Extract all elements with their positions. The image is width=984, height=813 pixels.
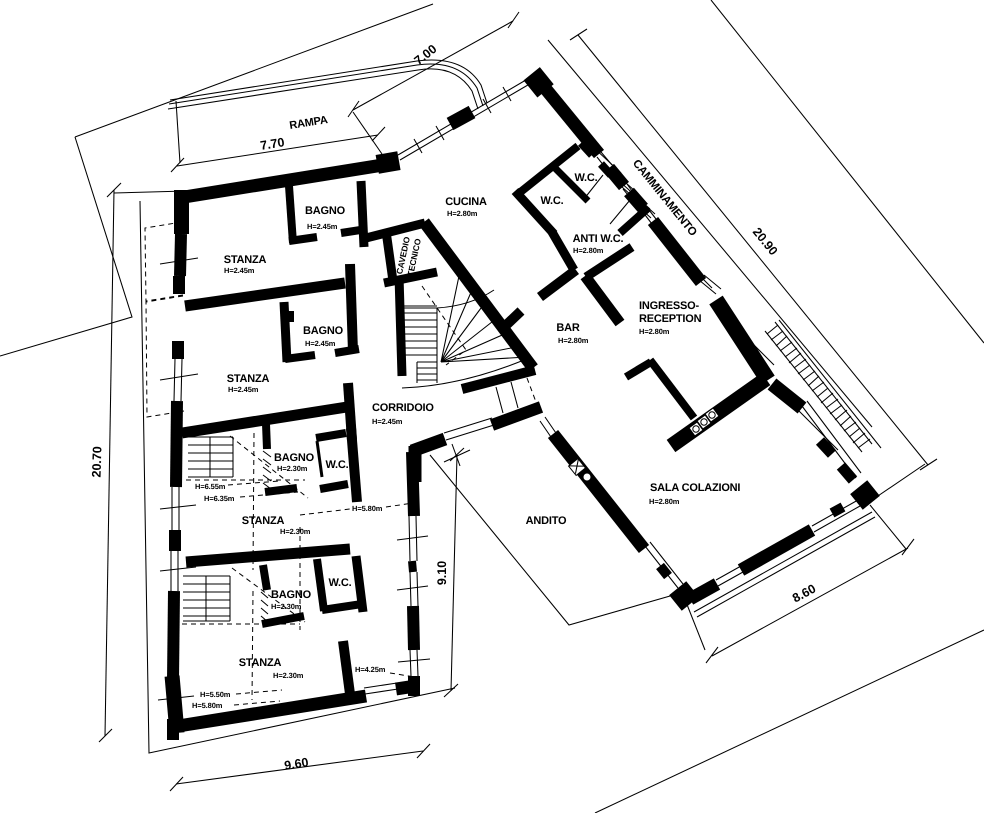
svg-text:W.C.: W.C. — [540, 195, 563, 207]
svg-text:STANZA: STANZA — [242, 515, 285, 527]
svg-text:H=2.45m: H=2.45m — [224, 266, 255, 275]
svg-text:ANDITO: ANDITO — [526, 515, 567, 527]
svg-text:H=5.50m: H=5.50m — [200, 690, 231, 699]
svg-text:CUCINA: CUCINA — [445, 196, 487, 208]
svg-text:BAR: BAR — [556, 322, 579, 334]
svg-text:H=2.80m: H=2.80m — [447, 209, 478, 218]
svg-text:20.70: 20.70 — [89, 446, 104, 478]
svg-text:H=2.30m: H=2.30m — [273, 671, 304, 680]
svg-text:SALA COLAZIONI: SALA COLAZIONI — [650, 482, 740, 494]
svg-text:STANZA: STANZA — [224, 254, 267, 266]
svg-text:H=2.45m: H=2.45m — [228, 385, 259, 394]
svg-text:INGRESSO-: INGRESSO- — [639, 300, 699, 312]
svg-text:BAGNO: BAGNO — [303, 325, 344, 337]
svg-text:W.C.: W.C. — [574, 172, 597, 184]
svg-text:H=4.25m: H=4.25m — [355, 665, 386, 674]
svg-text:W.C.: W.C. — [328, 577, 351, 589]
svg-text:9.10: 9.10 — [435, 561, 449, 585]
svg-text:BAGNO: BAGNO — [274, 452, 315, 464]
svg-text:STANZA: STANZA — [227, 373, 270, 385]
svg-text:H=2.80m: H=2.80m — [558, 336, 589, 345]
svg-text:H=2.30m: H=2.30m — [280, 527, 311, 536]
svg-text:H=2.80m: H=2.80m — [639, 327, 670, 336]
svg-text:BAGNO: BAGNO — [305, 205, 346, 217]
svg-text:BAGNO: BAGNO — [271, 589, 312, 601]
svg-text:H=2.30m: H=2.30m — [271, 602, 302, 611]
svg-text:H=2.45m: H=2.45m — [307, 222, 338, 231]
svg-text:STANZA: STANZA — [239, 657, 282, 669]
svg-text:H=6.55m: H=6.55m — [195, 482, 226, 491]
svg-text:H=2.30m: H=2.30m — [277, 464, 308, 473]
svg-text:CORRIDOIO: CORRIDOIO — [372, 402, 434, 414]
svg-text:H=2.45m: H=2.45m — [372, 417, 403, 426]
svg-text:H=6.35m: H=6.35m — [204, 494, 235, 503]
svg-text:H=2.45m: H=2.45m — [305, 339, 336, 348]
svg-text:RECEPTION: RECEPTION — [639, 313, 702, 325]
svg-text:H=2.80m: H=2.80m — [573, 246, 604, 255]
svg-text:H=5.80m: H=5.80m — [192, 701, 223, 710]
svg-text:ANTI W.C.: ANTI W.C. — [573, 233, 624, 245]
svg-text:H=2.80m: H=2.80m — [649, 497, 680, 506]
svg-text:W.C.: W.C. — [325, 459, 348, 471]
svg-text:H=5.80m: H=5.80m — [352, 504, 383, 513]
